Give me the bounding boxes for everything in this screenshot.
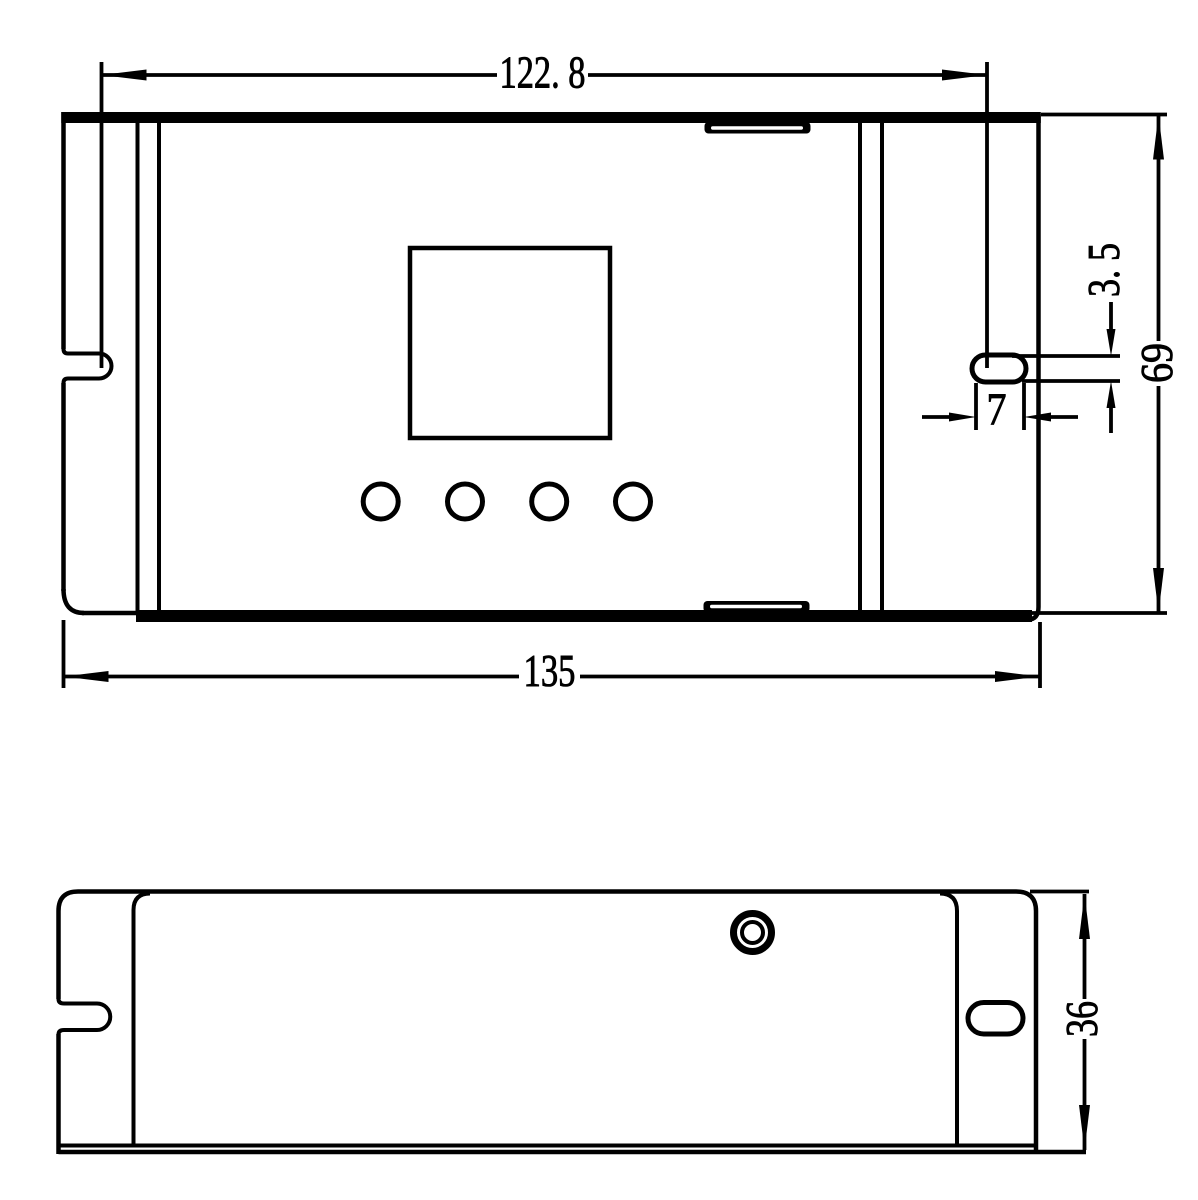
svg-text:122. 8: 122. 8 — [500, 47, 586, 98]
svg-text:7: 7 — [987, 384, 1007, 435]
svg-text:3. 5: 3. 5 — [1078, 243, 1129, 297]
svg-text:135: 135 — [524, 645, 576, 696]
svg-text:36: 36 — [1056, 1001, 1107, 1037]
svg-text:69: 69 — [1131, 343, 1182, 383]
